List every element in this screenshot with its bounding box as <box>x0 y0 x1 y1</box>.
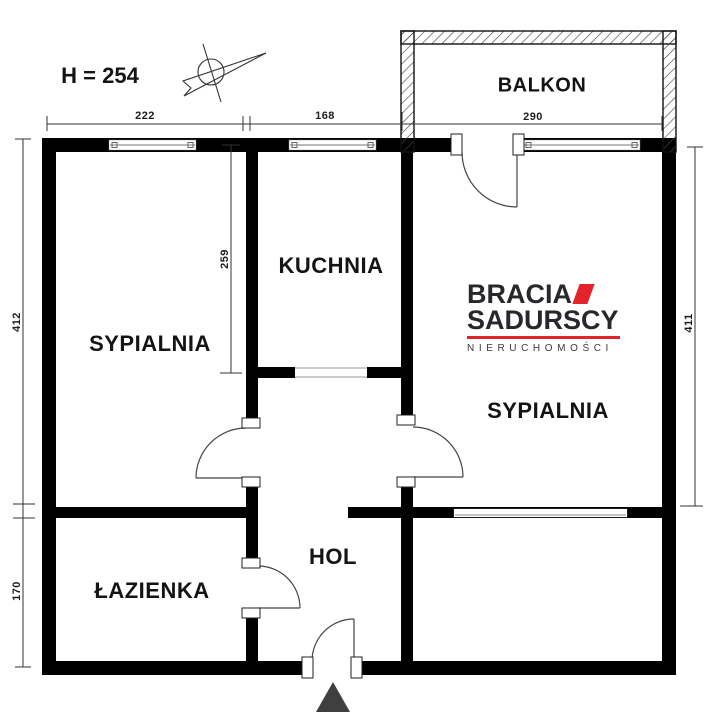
wall-openings <box>246 138 513 675</box>
floor-plan: H = 254 BALKON SYPIALNIA KUCHNIA SYPIALN… <box>0 0 718 719</box>
window-bedroom-right <box>523 140 641 151</box>
dim-label-left-upper: 412 <box>11 312 23 332</box>
room-label-kuchnia: KUCHNIA <box>279 253 384 279</box>
room-label-lazienka: ŁAZIENKA <box>94 578 209 604</box>
logo-line1: BRACIA <box>467 281 572 307</box>
dim-label-left-lower: 170 <box>11 581 23 601</box>
dim-label-top-middle: 168 <box>315 110 335 122</box>
logo-line1-row: BRACIA <box>467 281 623 307</box>
north-arrow-icon <box>183 44 266 102</box>
logo-line3: NIERUCHOMOŚCI <box>467 343 623 354</box>
agency-logo: BRACIA SADURSCY NIERUCHOMOŚCI <box>467 281 623 354</box>
logo-red-rule <box>467 336 620 339</box>
logo-red-mark-icon <box>572 284 594 304</box>
dim-label-top-left: 222 <box>135 110 155 122</box>
dim-label-right: 411 <box>683 313 695 332</box>
entrance-marker-icon <box>316 682 350 712</box>
room-label-sypialnia-left: SYPIALNIA <box>89 331 211 357</box>
built-in-band <box>454 509 628 518</box>
room-label-balkon: BALKON <box>498 75 587 98</box>
logo-line2-row: SADURSCY <box>467 307 623 333</box>
logo-line2: SADURSCY <box>467 307 619 333</box>
room-label-sypialnia-right: SYPIALNIA <box>487 398 609 424</box>
doors <box>196 134 524 678</box>
window-kitchen <box>289 140 377 151</box>
dim-label-top-right: 290 <box>523 111 543 123</box>
room-label-hol: HOL <box>309 544 357 570</box>
dim-label-kitchen-wall: 259 <box>219 249 231 269</box>
ceiling-height-label: H = 254 <box>61 63 139 89</box>
window-bedroom-left <box>109 140 197 151</box>
floor-plan-drawing <box>0 0 718 719</box>
